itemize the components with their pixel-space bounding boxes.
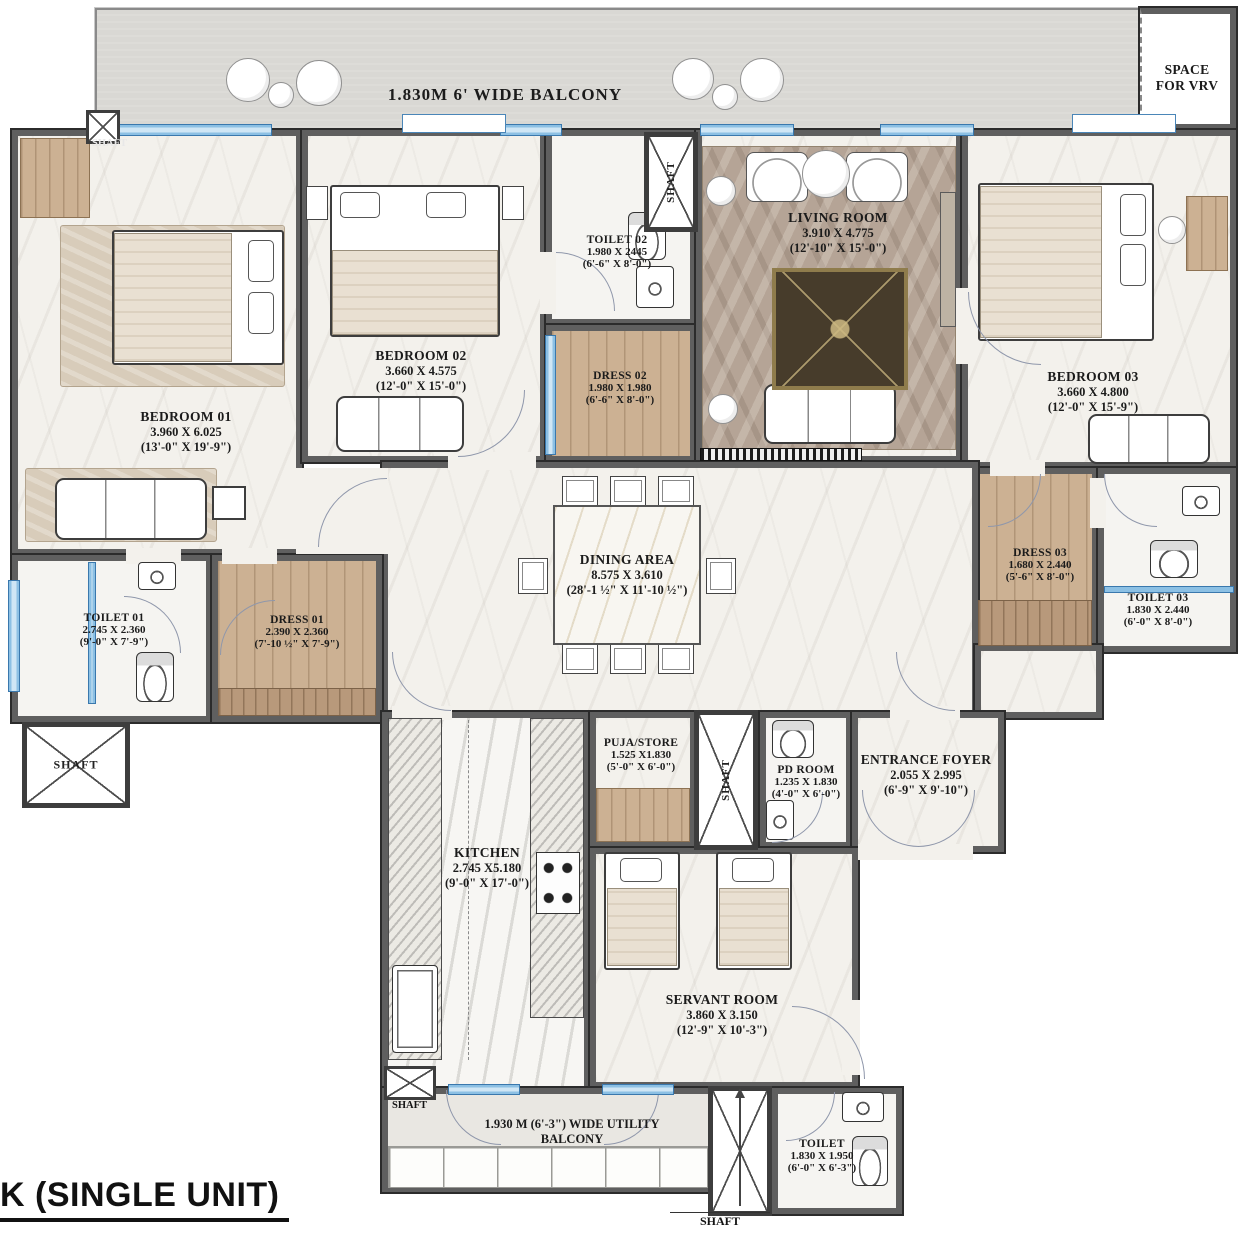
pdroom-label: PD ROOM 1.235 X 1.830 (4'-0" X 6'-0") <box>772 764 840 800</box>
kitchen-sink <box>392 965 438 1053</box>
blanket <box>719 888 789 966</box>
puja-label: PUJA/STORE 1.525 X1.830 (5'-0" X 6'-0") <box>604 737 678 773</box>
shaft-label: SHAFT <box>720 759 732 801</box>
dining-chair <box>658 644 694 674</box>
shaft-mini-top-label: SHAFT <box>92 138 127 149</box>
balcony-label: 1.830M 6' WIDE BALCONY <box>388 85 622 105</box>
side-table <box>212 486 246 520</box>
round-table <box>802 150 850 198</box>
tv-unit-hatch <box>700 448 862 461</box>
armchair <box>846 152 908 202</box>
pillow <box>248 292 274 334</box>
shaft-bottom-label: SHAFT <box>670 1212 770 1229</box>
window <box>700 124 794 136</box>
window-sill <box>402 114 506 133</box>
dining-chair <box>706 558 736 594</box>
washbasin <box>636 266 674 308</box>
opening-toilet02 <box>540 252 556 314</box>
wardrobe <box>20 138 90 218</box>
stove <box>536 852 580 914</box>
sofa <box>764 384 896 444</box>
shaft-box-left: SHAFT <box>22 722 130 808</box>
livingroom-label: LIVING ROOM 3.910 X 4.775 (12'-10" X 15'… <box>788 210 888 256</box>
balcony-table <box>712 84 738 110</box>
window <box>880 124 974 136</box>
plan-title: K (SINGLE UNIT) <box>0 1176 289 1222</box>
balcony-chair <box>296 60 342 106</box>
washbasin <box>1182 486 1220 516</box>
sofa <box>1088 414 1210 464</box>
window-slider <box>602 1084 674 1095</box>
floor-plan: 1.830M 6' WIDE BALCONY SPACE FOR VRV SHA… <box>0 0 1244 1235</box>
pillow <box>620 858 662 882</box>
pillow <box>248 240 274 282</box>
shaft-box-top: SHAFT <box>644 132 698 232</box>
utility-balcony-label: 1.930 M (6'-3") WIDE UTILITY BALCONY <box>484 1117 659 1147</box>
blanket <box>114 233 232 362</box>
dining-chair <box>610 476 646 506</box>
dining-chair <box>562 476 598 506</box>
shaft-label: SHAFT <box>665 161 677 203</box>
bedroom03-label: BEDROOM 03 3.660 X 4.800 (12'-0" X 15'-9… <box>1047 369 1138 415</box>
dress03-label: DRESS 03 1.680 X 2.440 (5'-6" X 8'-0") <box>1006 547 1074 583</box>
opening-dress01 <box>222 548 277 564</box>
toilet-wc <box>852 1136 888 1186</box>
washbasin <box>138 562 176 590</box>
washbasin <box>842 1092 884 1122</box>
room-passage <box>975 645 1102 718</box>
balcony-chair <box>226 58 270 102</box>
shaft-mini-kitchen-label: SHAFT <box>392 1100 427 1111</box>
servant-label: SERVANT ROOM 3.860 X 3.150 (12'-9" X 10'… <box>666 992 779 1038</box>
balcony-chair <box>672 58 714 100</box>
shaft-arrow-icon <box>735 1088 745 1098</box>
dress01-label: DRESS 01 2.390 X 2.360 (7'-10 ½" X 7'-9"… <box>255 614 340 650</box>
dining-chair <box>610 644 646 674</box>
toilet01-label: TOILET 01 2.745 X 2.360 (9'-0" X 7'-9") <box>80 612 148 648</box>
blanket <box>332 250 498 335</box>
tv-console <box>940 192 956 327</box>
window-sill <box>1072 114 1176 133</box>
balcony-table <box>268 82 294 108</box>
bedroom02-label: BEDROOM 02 3.660 X 4.575 (12'-0" X 15'-0… <box>375 348 466 394</box>
pillow <box>732 858 774 882</box>
bedroom01-label: BEDROOM 01 3.960 X 6.025 (13'-0" X 19'-9… <box>140 409 231 455</box>
toilet-utility-label: TOILET 1.830 X 1.950 (6'-0" X 6'-3") <box>788 1138 856 1174</box>
pillow <box>426 192 466 218</box>
dining-chair <box>658 476 694 506</box>
blanket <box>607 888 677 966</box>
wardrobe <box>978 600 1092 646</box>
dining-chair <box>562 644 598 674</box>
balcony-chair <box>740 58 784 102</box>
utility-tiles <box>388 1146 708 1188</box>
nightstand <box>306 186 328 220</box>
dining-label: DINING AREA 8.575 X 3.610 (28'-1 ½" X 11… <box>567 552 688 598</box>
window <box>8 580 20 692</box>
nightstand <box>502 186 524 220</box>
shaft-arrow-line <box>739 1098 741 1206</box>
toilet02-label: TOILET 02 1.980 X 2445 (6'-6" X 8'-0") <box>583 234 651 270</box>
puja-platform <box>596 788 690 842</box>
kitchen-label: KITCHEN 2.745 X5.180 (9'-0" X 17'-0") <box>445 845 529 891</box>
shaft-box-mini-kitchen <box>384 1066 436 1100</box>
shaft-box-center: SHAFT <box>694 710 758 850</box>
window <box>106 124 272 136</box>
sliding-door <box>545 335 556 455</box>
shaft-label: SHAFT <box>53 758 98 773</box>
pillow <box>1120 244 1146 286</box>
armchair <box>746 152 808 202</box>
desk-chair <box>1158 216 1186 244</box>
sofa <box>336 396 464 452</box>
pillow <box>340 192 380 218</box>
toilet-wc <box>136 652 174 702</box>
desk <box>1186 196 1228 271</box>
dining-chair <box>518 558 548 594</box>
speaker <box>708 394 738 424</box>
toilet-wc <box>772 720 814 758</box>
speaker <box>706 176 736 206</box>
window-slider <box>448 1084 520 1095</box>
toilet03-label: TOILET 03 1.830 X 2.440 (6'-0" X 8'-0") <box>1124 592 1192 628</box>
chaise-sofa <box>55 478 207 540</box>
ornate-carpet <box>772 268 908 390</box>
window <box>500 124 562 136</box>
vrv-label: SPACE FOR VRV <box>1156 62 1219 94</box>
wardrobe <box>218 688 376 716</box>
toilet-wc <box>1150 540 1198 578</box>
opening-toilet03 <box>1090 478 1106 528</box>
pillow <box>1120 194 1146 236</box>
dress02-label: DRESS 02 1.980 X 1.980 (6'-6" X 8'-0") <box>586 370 654 406</box>
foyer-label: ENTRANCE FOYER 2.055 X 2.995 (6'-9" X 9'… <box>861 752 992 798</box>
